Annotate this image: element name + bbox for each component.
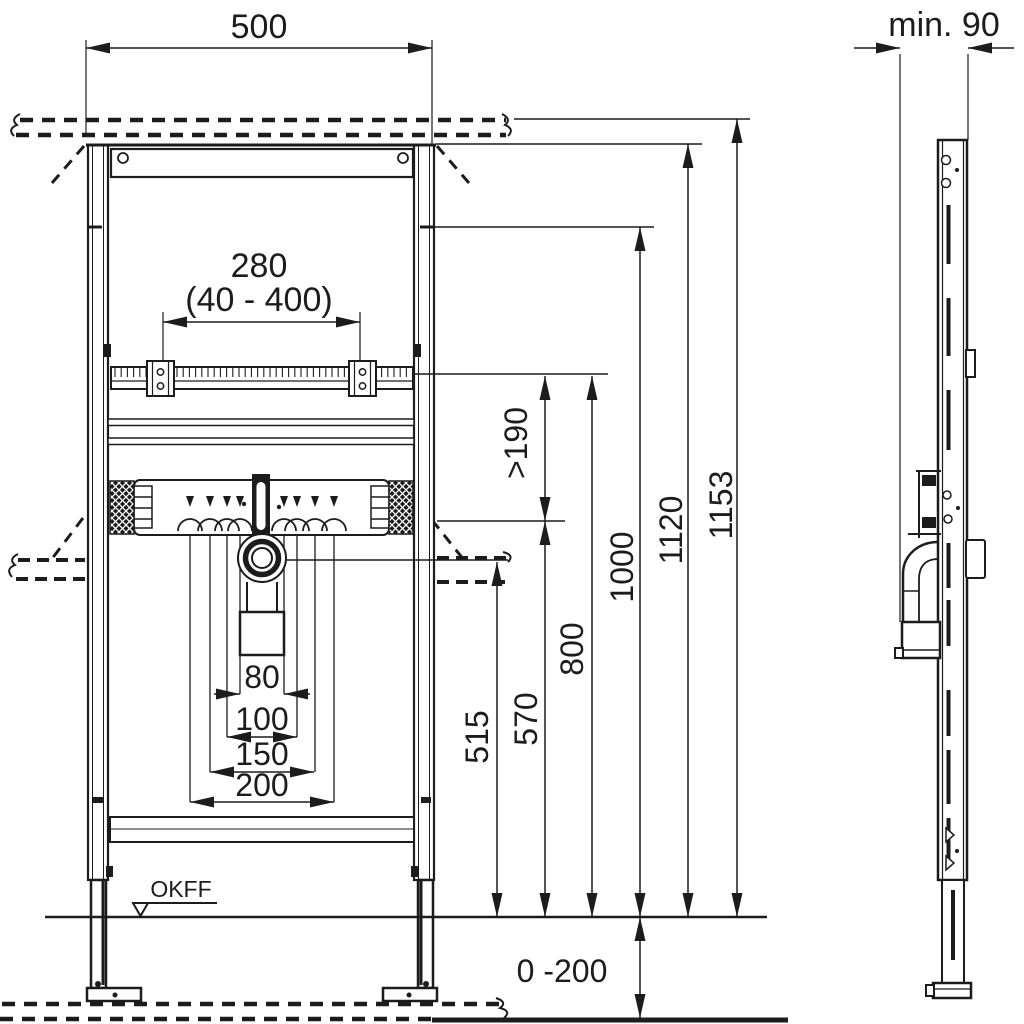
manifold-bar [110,474,413,542]
leg-left [87,866,141,1001]
raw-floor-hatch [0,1004,500,1019]
top-mounting-rail [111,149,413,177]
dim-280-range-label: (40 - 400) [185,281,332,319]
side-view [854,43,1014,999]
dim-280-label: 280 [231,247,288,285]
dim-100-label: 100 [235,701,288,737]
crossmember-lower [108,438,414,445]
rail-slider-right [349,361,376,396]
dim-500-label: 500 [231,8,288,46]
dim-1120-label: 1120 [653,496,689,565]
drawing-canvas: 500 min. 90 280 (40 - 400) >190 515 570 … [0,0,1024,1024]
screw-hole-icon [398,153,408,163]
screw-hole-icon [118,153,128,163]
ceiling-break-squiggle-right [502,114,511,136]
dim-clearance-190 [540,376,551,521]
bottom-crossbar [110,817,414,842]
dim-200-label: 200 [235,767,288,803]
raw-floor-squiggle [496,998,507,1018]
comb-plate-right [371,486,389,528]
hatch-block-left [110,481,134,534]
wall-stub-left [16,560,85,579]
dim-floor-adjust-label: 0 -200 [517,953,608,989]
dim-280 [163,312,360,361]
profile-tab [966,540,985,578]
dim-min-90 [854,43,1014,623]
side-water-elbow [903,542,938,622]
side-profile [938,140,985,880]
graduated-rail [111,361,413,396]
post-tick-right [421,797,431,803]
dim-floor-adjust [635,917,646,1018]
dim-80-label: 80 [244,659,280,695]
comb-plate-left [134,486,152,528]
frame-left-post [88,145,108,880]
ceiling-break-squiggle-left [11,114,20,136]
side-foot-plate [933,983,971,998]
technical-drawing-washbasin-frame: 500 min. 90 280 (40 - 400) >190 515 570 … [0,0,1024,1024]
leg-right [383,866,437,1001]
wall-stub-squiggle [9,554,18,577]
side-foot-clamp [926,985,934,996]
dim-1153-label: 1153 [703,471,739,540]
drain-outlet-box [240,612,284,655]
post-clip-left [103,344,111,357]
drain-assembly [238,534,286,655]
dim-190-label: >190 [498,407,534,479]
dim-1000-label: 1000 [604,531,640,602]
floor-level-mark [133,903,217,916]
central-strap [252,474,270,542]
post-tick-left [93,797,103,803]
profile-clip [966,350,975,377]
rail-slider-left [147,361,174,396]
floor-level-label: OKFF [150,876,211,902]
dim-515-label: 515 [459,710,495,763]
post-clip-right [413,344,421,357]
dim-800-label: 800 [554,622,590,675]
frame-right-post [414,145,434,880]
crossmember-upper [108,419,414,426]
dim-570-label: 570 [508,692,544,745]
side-outlet-box [895,622,940,658]
dim-min90-label: min. 90 [888,6,1000,44]
front-view [0,114,788,1020]
hatch-block-right [389,481,413,534]
dim-500 [86,40,432,144]
